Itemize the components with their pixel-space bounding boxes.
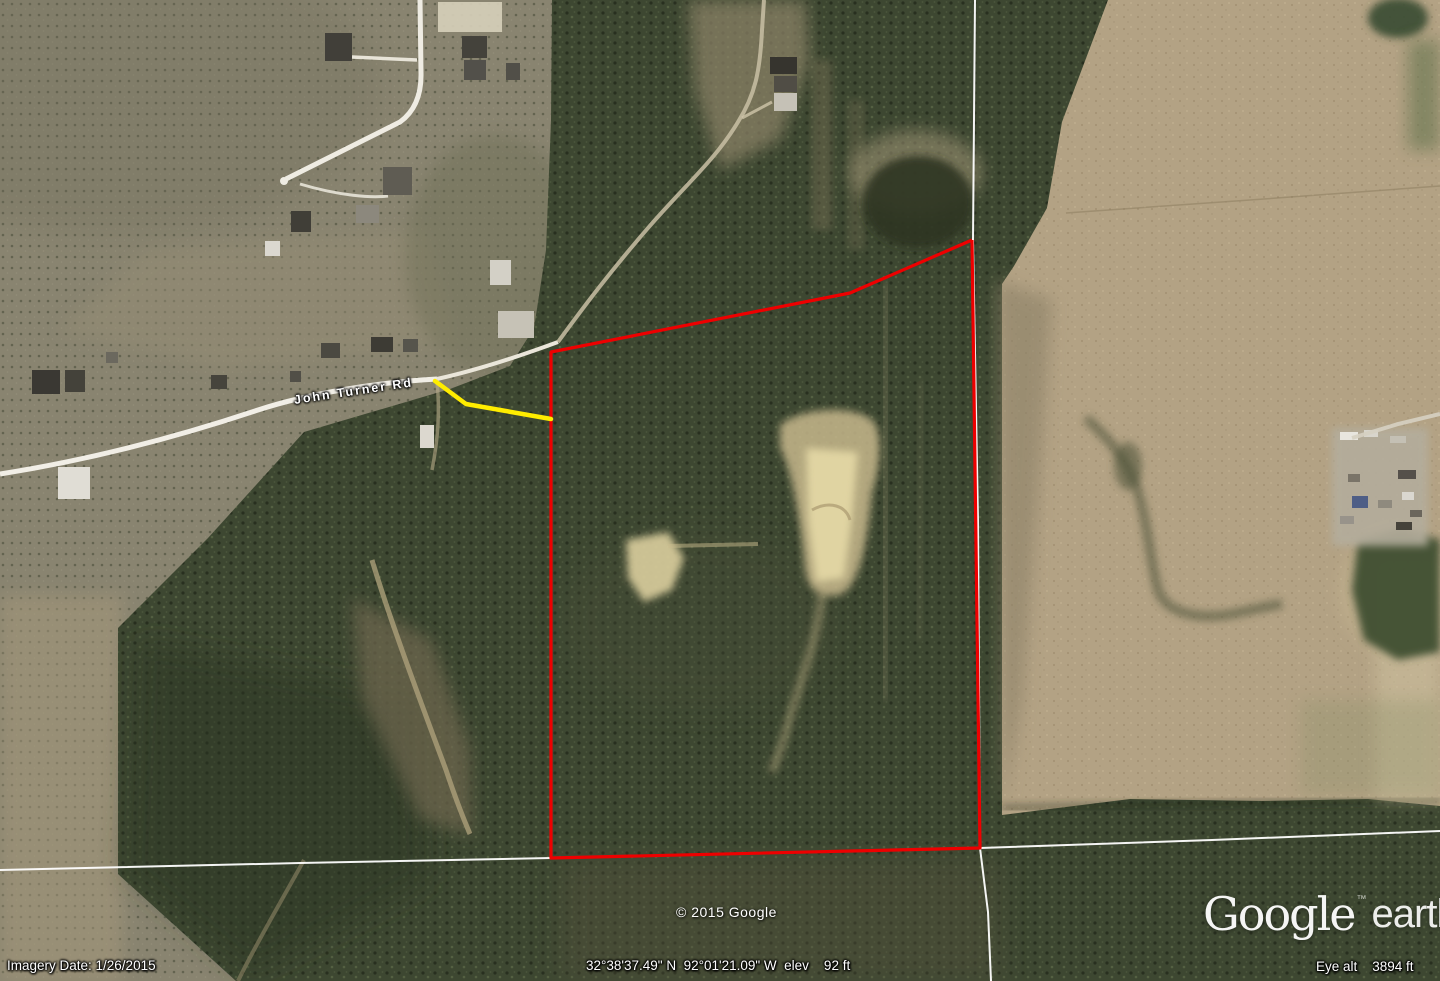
copyright-text: © 2015 Google bbox=[676, 904, 777, 920]
imagery-date: Imagery Date: 1/26/2015 bbox=[7, 958, 156, 973]
section-line bbox=[980, 848, 991, 981]
logo-earth: earth bbox=[1372, 894, 1440, 934]
section-lines bbox=[0, 0, 1440, 981]
map-annotations bbox=[0, 0, 1440, 981]
google-earth-logo: Google ™ earth bbox=[1203, 891, 1440, 937]
logo-google: Google bbox=[1203, 891, 1355, 937]
earth-viewport[interactable]: John Turner Rd © 2015 Google Google ™ ea… bbox=[0, 0, 1440, 981]
measured-path bbox=[435, 381, 551, 419]
section-line bbox=[980, 831, 1440, 848]
eye-altitude: Eye alt 3894 ft bbox=[1316, 959, 1414, 974]
parcel-outline bbox=[551, 240, 980, 858]
logo-trademark: ™ bbox=[1357, 895, 1367, 905]
cursor-coordinates: 32°38'37.49" N 92°01'21.09" W elev 92 ft bbox=[586, 958, 850, 973]
